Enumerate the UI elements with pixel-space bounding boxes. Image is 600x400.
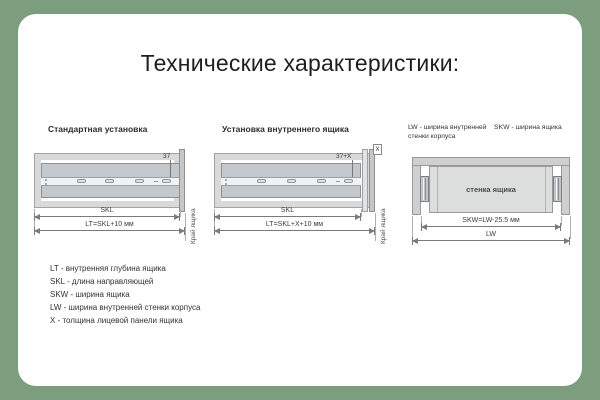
diagram2-drawing: X 37+X SKL LT=SKL+X+10 мм Край ящика: [212, 148, 402, 248]
diagram1-drawing: 37 SKL LT=SKL+10 мм Край ящика: [32, 148, 212, 248]
drawer-edge-bar: [369, 149, 375, 212]
cabinet-back-wall: [412, 157, 570, 166]
slide-cross-section-right: [553, 176, 562, 202]
drawer-edge-bar: [179, 149, 185, 212]
dim-lw-label: LW: [486, 231, 496, 238]
legend-item-skl: SKL - длина направляющей: [50, 275, 200, 288]
slide-background: { "colors": { "frame_green": "#7d9d7f", …: [0, 0, 600, 400]
slot-hole-37: [162, 179, 171, 183]
legend-item-skw: SKW - ширина ящика: [50, 288, 200, 301]
note-lw: LW - ширина внутренней стенки корпуса: [408, 124, 488, 141]
dim-skl-label: SKL: [100, 207, 113, 214]
drawer-edge-vertical-label: Край ящика: [190, 208, 197, 244]
slot-hole-37x: [344, 179, 353, 183]
extension-line: [361, 209, 362, 217]
extension-line: [412, 216, 413, 239]
page-title: Технические характеристики:: [18, 50, 582, 77]
edge-reference-line: [375, 213, 376, 241]
legend-item-lw: LW - ширина внутренней стенки корпуса: [50, 301, 200, 314]
dim-37-label: 37: [163, 153, 170, 160]
dim-skl: SKL: [214, 216, 361, 217]
diagram2-title: Установка внутреннего ящика: [222, 124, 349, 134]
note-skw: SKW - ширина ящика: [494, 124, 586, 133]
diagram1-title: Стандартная установка: [48, 124, 147, 134]
inner-facade-panel: [362, 149, 368, 212]
content-card: Технические характеристики: Стандартная …: [18, 14, 582, 386]
dim-skw: SKW=LW-25.5 мм: [421, 226, 561, 227]
drawer-wall-label: стенка ящика: [429, 185, 553, 194]
dim-x-label: X: [373, 144, 382, 155]
legend-item-lt: LT - внутренняя глубина ящика: [50, 262, 200, 275]
dim-lt-label: LT=SKL+X+10 мм: [266, 221, 323, 228]
hole-dash: [336, 181, 340, 182]
round-hole: [225, 183, 227, 185]
dim-37-leader: [170, 160, 171, 177]
dim-lw: LW: [412, 240, 570, 241]
round-hole: [45, 179, 47, 181]
drawer-edge-vertical-label: Край ящика: [380, 208, 387, 244]
dim-lt: LT=SKL+X+10 мм: [214, 230, 375, 231]
slot-hole: [317, 179, 326, 183]
round-hole: [225, 179, 227, 181]
extension-line: [180, 209, 181, 217]
dim-lt: LT=SKL+10 мм: [34, 230, 185, 231]
cabinet-side-wall-right: [561, 165, 570, 215]
dim-lt-label: LT=SKL+10 мм: [85, 221, 133, 228]
dim-skl-label: SKL: [281, 207, 294, 214]
dim-skw-label: SKW=LW-25.5 мм: [462, 217, 519, 224]
slot-hole: [287, 179, 296, 183]
slot-hole: [135, 179, 144, 183]
legend-item-x: X - толщина лицевой панели ящика: [50, 314, 200, 327]
diagram3-drawing: LW - ширина внутренней стенки корпуса SK…: [404, 122, 594, 262]
edge-reference-line: [185, 213, 186, 241]
extension-line: [561, 216, 562, 226]
hole-dash: [154, 181, 158, 182]
slot-hole: [105, 179, 114, 183]
legend: LT - внутренняя глубина ящика SKL - длин…: [50, 262, 200, 327]
slot-hole: [77, 179, 86, 183]
extension-line: [570, 216, 571, 239]
dim-37x-label: 37+X: [336, 153, 351, 160]
dim-37x-leader: [352, 160, 353, 177]
round-hole: [45, 183, 47, 185]
dim-skl: SKL: [34, 216, 180, 217]
slot-hole: [257, 179, 266, 183]
slide-cross-section-left: [420, 176, 429, 202]
